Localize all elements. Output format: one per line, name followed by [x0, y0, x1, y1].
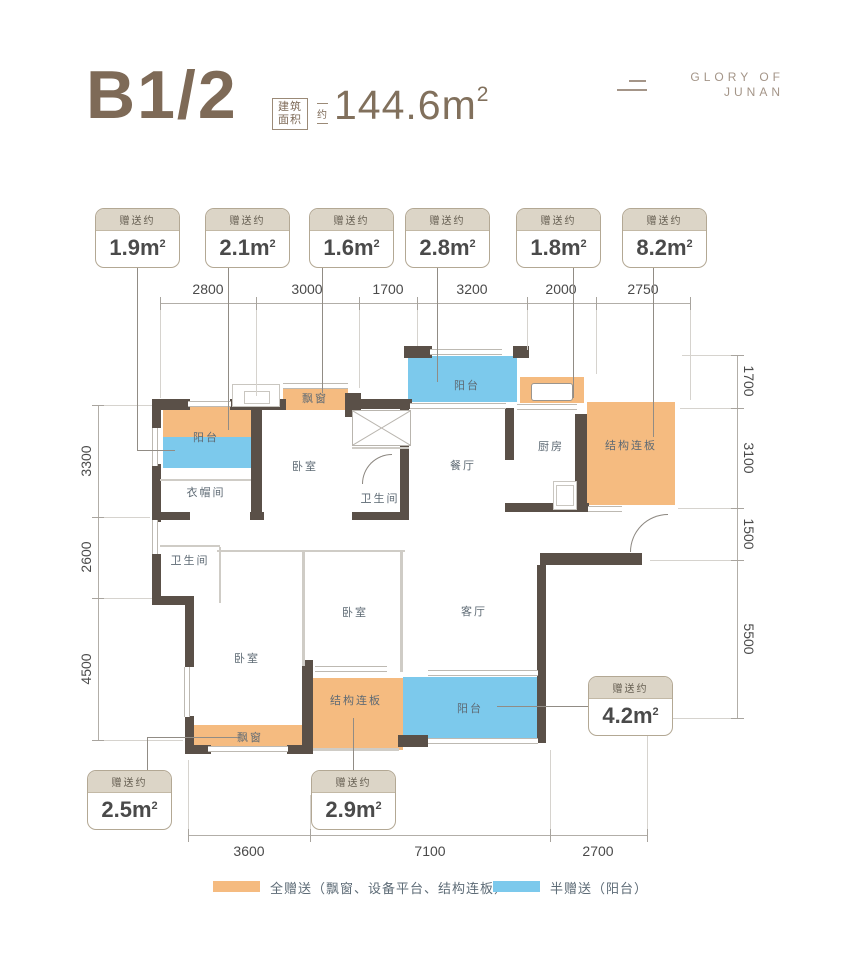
leader-line [147, 737, 148, 770]
window [283, 383, 348, 389]
gift-sup: 2 [653, 706, 659, 718]
gift-value: 1.8 [530, 235, 561, 260]
partition-line [352, 447, 409, 449]
wall-segment [352, 512, 409, 520]
dimension-label: 7100 [414, 843, 445, 859]
approx-text: 约 [317, 106, 327, 121]
partition-line [217, 550, 405, 552]
wall-segment [398, 735, 428, 747]
wall-segment [505, 408, 514, 460]
room-label-bathroom: 卫生间 [361, 490, 400, 506]
dimension-label: 3100 [741, 442, 757, 473]
dimension-label: 2800 [192, 281, 223, 297]
leader-line [137, 450, 175, 451]
gift-sup: 2 [270, 238, 276, 250]
dimension-tick [310, 829, 311, 842]
extension-line [682, 355, 731, 356]
wall-segment [302, 660, 313, 754]
window [410, 403, 506, 409]
window [430, 349, 502, 355]
extension-line [104, 598, 152, 599]
kitchen-counter-icon [556, 485, 574, 506]
gift-callout-value: 2.8m2 [406, 231, 489, 267]
gift-callout: 赠送约 2.9m2 [311, 770, 396, 830]
area-sup: 2 [477, 83, 490, 106]
leader-line [228, 267, 229, 430]
gift-value: 2.1 [219, 235, 250, 260]
window [152, 520, 158, 554]
dimension-line-left [98, 405, 99, 740]
partition-line [160, 479, 251, 481]
dimension-tick [160, 297, 161, 310]
partition-line [219, 547, 221, 603]
gift-callout: 赠送约 1.8m2 [516, 208, 601, 268]
elevator-shaft [352, 410, 411, 446]
room-label-living: 客厅 [461, 603, 487, 619]
shaft-cross-icon [353, 411, 410, 445]
extension-line [417, 310, 418, 346]
dimension-label: 3200 [456, 281, 487, 297]
dimension-label: 5500 [741, 623, 757, 654]
window [184, 667, 190, 717]
gift-value: 1.9 [109, 235, 140, 260]
room-label-balcony: 阳台 [193, 429, 219, 445]
extension-line [678, 508, 731, 509]
extension-line [188, 760, 189, 829]
dimension-label: 2600 [78, 541, 94, 572]
legend-label-half-gift: 半赠送（阳台） [550, 878, 648, 897]
dimension-label: 3000 [291, 281, 322, 297]
gift-callout-value: 1.9m2 [96, 231, 179, 267]
brand-logo: GLORY OF JUNAN [662, 70, 784, 100]
dimension-line-right [737, 355, 738, 718]
dimension-tick [527, 297, 528, 310]
approx-mark: 约 [315, 101, 329, 126]
room-label-bedroom: 卧室 [292, 458, 318, 474]
approx-line-bottom [317, 123, 328, 124]
extension-line [256, 310, 257, 396]
wall-segment [250, 512, 264, 520]
gift-callout-label: 赠送约 [406, 209, 489, 231]
gift-unit: m [354, 235, 374, 260]
dimension-label: 3600 [233, 843, 264, 859]
gift-callout: 赠送约 4.2m2 [588, 676, 673, 736]
extension-line [647, 725, 648, 829]
room-label-bedroom: 卧室 [234, 650, 260, 666]
window [152, 428, 158, 466]
wall-segment [185, 603, 194, 667]
building-area-label-line1: 建筑 [273, 101, 307, 114]
gift-sup: 2 [160, 238, 166, 250]
building-area-label-line2: 面积 [273, 114, 307, 127]
wall-segment [537, 565, 546, 743]
gift-sup: 2 [687, 238, 693, 250]
leader-line [437, 267, 438, 382]
building-area-label: 建筑 面积 [272, 98, 308, 130]
partition-line [313, 748, 399, 751]
gift-sup: 2 [470, 238, 476, 250]
room-label-bathroom: 卫生间 [171, 552, 210, 568]
plan-name: B1/2 [86, 56, 238, 134]
window [428, 738, 538, 744]
extension-line [550, 750, 551, 829]
dimension-label: 2700 [582, 843, 613, 859]
dimension-tick [256, 297, 257, 310]
gift-unit: m [450, 235, 470, 260]
window [188, 401, 231, 407]
gift-sup: 2 [152, 800, 158, 812]
wall-segment [404, 346, 432, 358]
dimension-line-bottom [188, 835, 647, 836]
window [517, 404, 577, 410]
wall-segment [152, 554, 161, 601]
partition-line [302, 552, 305, 666]
extension-line [527, 310, 528, 350]
gift-callout-value: 2.9m2 [312, 793, 395, 829]
wall-segment [152, 410, 161, 428]
extension-line [104, 517, 150, 518]
leader-line [147, 737, 240, 738]
window [588, 506, 622, 512]
gift-value: 2.9 [325, 797, 356, 822]
leader-line [353, 718, 354, 770]
gift-callout: 赠送约 2.1m2 [205, 208, 290, 268]
gift-unit: m [356, 797, 376, 822]
room-label-slab: 结构连板 [330, 692, 382, 708]
gift-value: 1.6 [323, 235, 354, 260]
dimension-tick [550, 829, 551, 842]
dimension-label: 2000 [545, 281, 576, 297]
gift-callout: 赠送约 2.8m2 [405, 208, 490, 268]
gift-callout: 赠送约 8.2m2 [622, 208, 707, 268]
gift-callout-value: 1.6m2 [310, 231, 393, 267]
dimension-label: 4500 [78, 653, 94, 684]
floorplan-page: B1/2 建筑 面积 约 144.6m2 GLORY OF JUNAN 赠送约 … [0, 0, 850, 967]
area-unit: m [442, 82, 477, 128]
gift-value: 4.2 [602, 703, 633, 728]
logo-dash-icon [617, 89, 647, 91]
legend-label-full-gift: 全赠送（飘窗、设备平台、结构连板） [270, 878, 508, 897]
window [208, 746, 288, 752]
gift-callout-value: 2.1m2 [206, 231, 289, 267]
building-area-value: 144.6m2 [334, 82, 489, 129]
gift-unit: m [667, 235, 687, 260]
dimension-tick [731, 718, 744, 719]
gift-sup: 2 [581, 238, 587, 250]
approx-line-top [317, 103, 328, 104]
dimension-tick [731, 408, 744, 409]
gift-callout-label: 赠送约 [517, 209, 600, 231]
leader-line [322, 267, 323, 393]
window [315, 666, 387, 672]
dimension-tick [596, 297, 597, 310]
room-label-cloakroom: 衣帽间 [187, 484, 226, 500]
dimension-tick [731, 560, 744, 561]
dimension-label: 3300 [78, 445, 94, 476]
legend-swatch-blue [493, 881, 540, 892]
dimension-tick [359, 297, 360, 310]
dimension-line-top [160, 303, 690, 304]
room-label-baywindow: 飘窗 [302, 390, 328, 406]
room-label-slab: 结构连板 [605, 437, 657, 453]
gift-callout: 赠送约 2.5m2 [87, 770, 172, 830]
gift-callout-label: 赠送约 [589, 677, 672, 699]
legend-swatch-orange [213, 881, 260, 892]
gift-callout: 赠送约 1.9m2 [95, 208, 180, 268]
dimension-label: 1700 [741, 365, 757, 396]
window [428, 670, 538, 676]
extension-line [650, 560, 731, 561]
wall-segment [152, 512, 190, 520]
dimension-tick [188, 829, 189, 842]
gift-callout-value: 4.2m2 [589, 699, 672, 735]
room-label-balcony: 阳台 [457, 700, 483, 716]
room-label-balcony: 阳台 [454, 377, 480, 393]
leader-line [497, 706, 588, 707]
gift-callout-value: 1.8m2 [517, 231, 600, 267]
gift-callout-label: 赠送约 [310, 209, 393, 231]
structural-slab-fill-bottom [310, 678, 403, 750]
logo-line1: GLORY OF [662, 70, 784, 85]
washer-icon [244, 391, 270, 404]
gift-callout-label: 赠送约 [312, 771, 395, 793]
gift-unit: m [561, 235, 581, 260]
extension-line [596, 310, 597, 374]
gift-unit: m [250, 235, 270, 260]
gift-unit: m [633, 703, 653, 728]
extension-line [680, 408, 731, 409]
room-label-baywindow: 飘窗 [237, 729, 263, 745]
gift-value: 8.2 [636, 235, 667, 260]
gift-callout-value: 2.5m2 [88, 793, 171, 829]
dimension-label: 1700 [372, 281, 403, 297]
gift-callout-label: 赠送约 [206, 209, 289, 231]
area-number: 144.6 [334, 82, 442, 128]
leader-line [653, 267, 654, 437]
partition-line [400, 552, 403, 672]
room-label-bedroom: 卧室 [342, 604, 368, 620]
wall-segment [251, 408, 262, 520]
dimension-tick [417, 297, 418, 310]
gift-sup: 2 [374, 238, 380, 250]
gift-callout-value: 8.2m2 [623, 231, 706, 267]
structural-slab-fill-top [587, 402, 675, 505]
room-label-dining: 餐厅 [450, 457, 476, 473]
extension-line [160, 310, 161, 398]
gift-unit: m [132, 797, 152, 822]
room-label-kitchen: 厨房 [538, 438, 564, 454]
logo-line2: JUNAN [662, 85, 784, 100]
gift-value: 2.8 [419, 235, 450, 260]
wall-segment [152, 399, 190, 410]
gift-callout-label: 赠送约 [88, 771, 171, 793]
gift-callout: 赠送约 1.6m2 [309, 208, 394, 268]
leader-line [573, 267, 574, 398]
gift-sup: 2 [376, 800, 382, 812]
extension-line [104, 740, 183, 741]
extension-line [104, 405, 152, 406]
dimension-tick [690, 297, 691, 310]
gift-callout-label: 赠送约 [96, 209, 179, 231]
dimension-tick [647, 829, 648, 842]
door-arc [362, 454, 392, 484]
dimension-tick [731, 508, 744, 509]
extension-line [359, 310, 360, 388]
leader-line [137, 267, 138, 450]
gift-value: 2.5 [101, 797, 132, 822]
wall-segment [540, 553, 642, 565]
gift-callout-label: 赠送约 [623, 209, 706, 231]
sink-icon [531, 383, 573, 401]
partition-line [160, 545, 220, 547]
gift-unit: m [140, 235, 160, 260]
door-arc [630, 514, 668, 552]
logo-dash-icon [629, 80, 646, 82]
dimension-label: 1500 [741, 518, 757, 549]
dimension-tick [731, 355, 744, 356]
